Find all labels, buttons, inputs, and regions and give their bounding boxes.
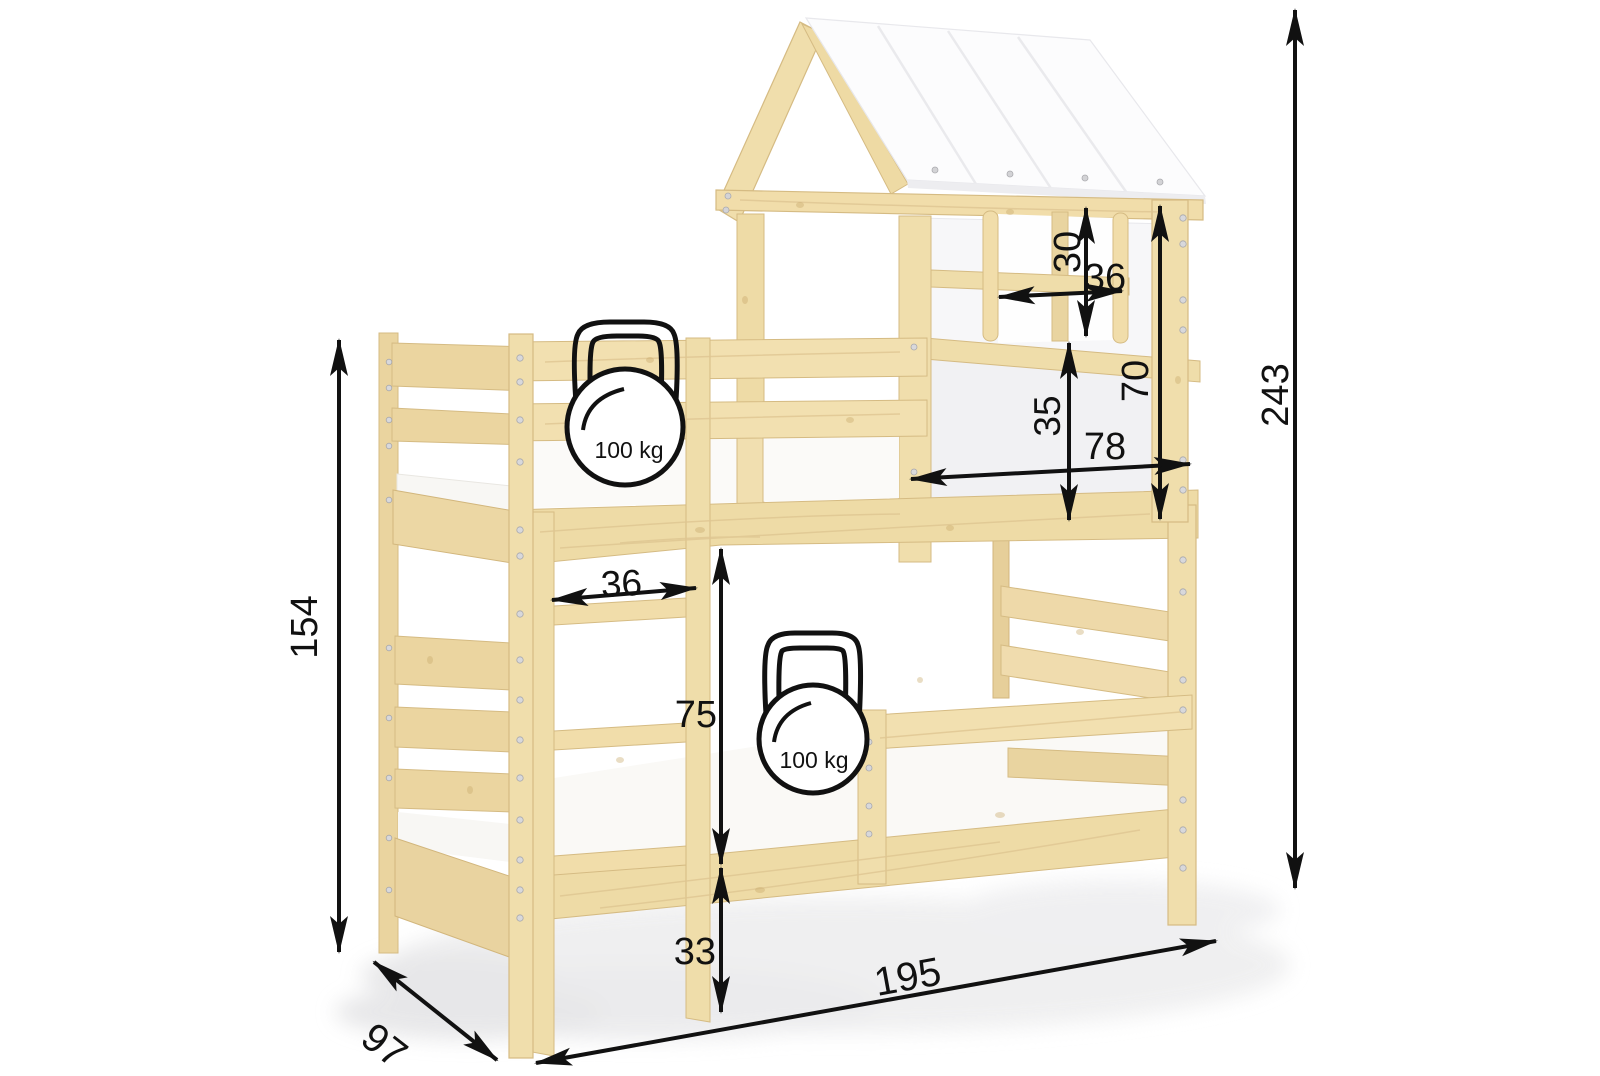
svg-text:36: 36	[600, 562, 643, 605]
svg-text:30: 30	[1047, 231, 1089, 273]
svg-text:78: 78	[1084, 426, 1126, 468]
svg-text:33: 33	[674, 931, 716, 973]
svg-text:100 kg: 100 kg	[594, 437, 663, 463]
svg-text:154: 154	[284, 595, 326, 658]
svg-text:75: 75	[675, 694, 717, 736]
svg-text:36: 36	[1084, 257, 1126, 299]
svg-text:100 kg: 100 kg	[779, 747, 848, 773]
svg-text:35: 35	[1027, 395, 1068, 436]
svg-text:70: 70	[1115, 360, 1157, 402]
svg-text:243: 243	[1255, 363, 1297, 426]
